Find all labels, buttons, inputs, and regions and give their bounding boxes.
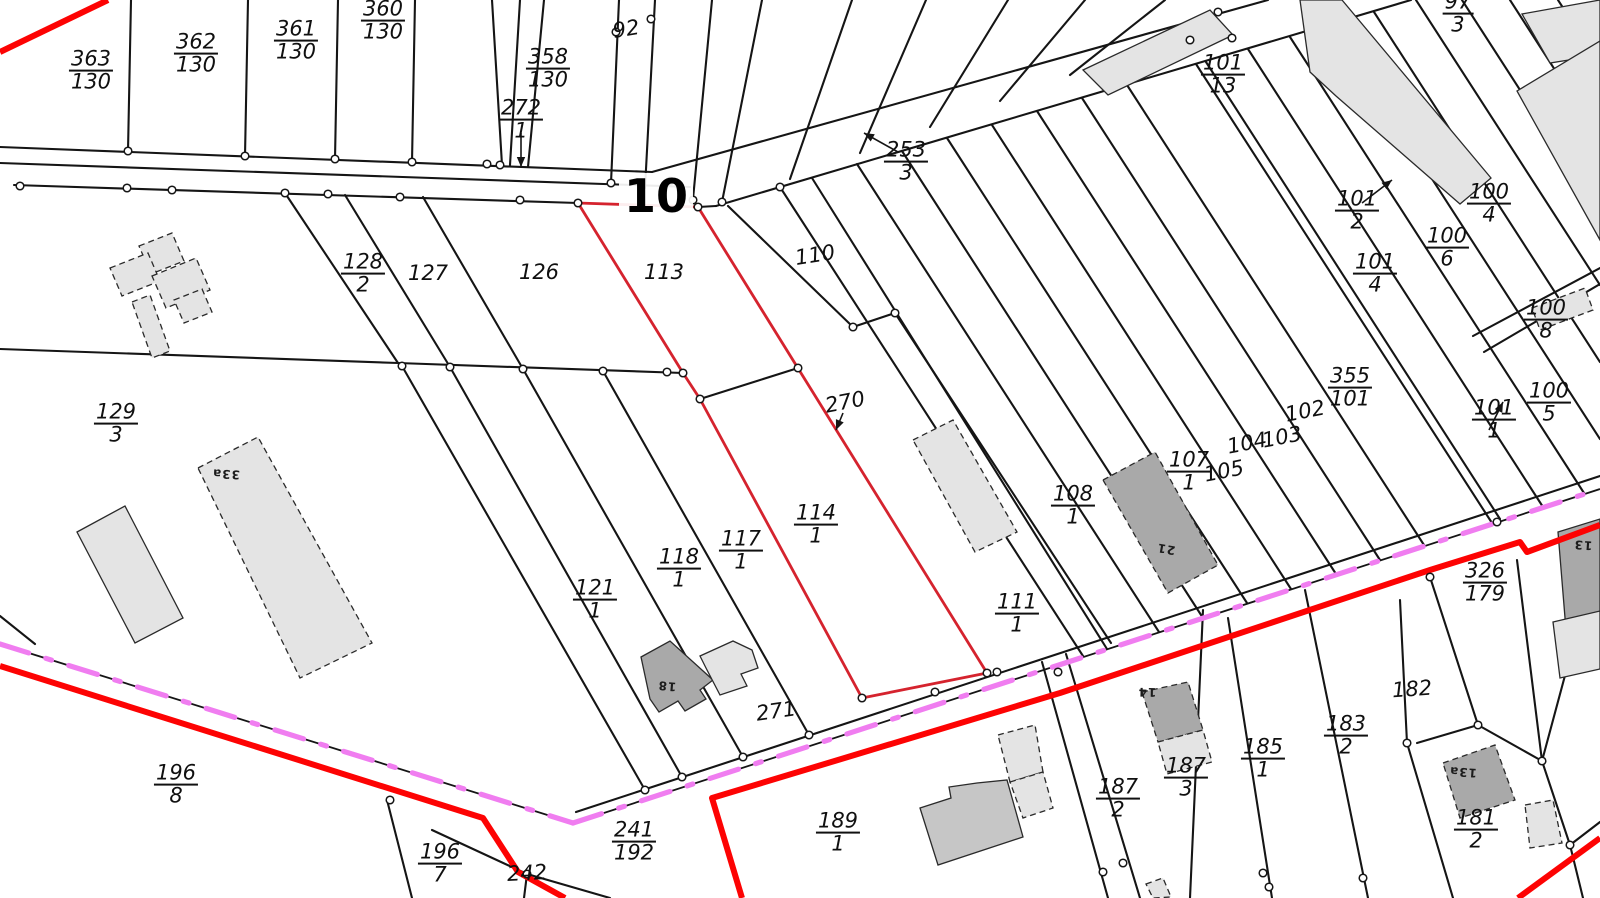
parcel-boundary-line bbox=[728, 206, 853, 327]
street-number-label: 10 bbox=[619, 173, 693, 219]
cadastral-map-canvas[interactable]: 3631303621303611303601303581302721128212… bbox=[0, 0, 1600, 898]
survey-node bbox=[891, 309, 899, 317]
building-footprint bbox=[913, 420, 1017, 552]
survey-node bbox=[396, 193, 404, 201]
parcel-boundary-line bbox=[1066, 654, 1140, 898]
parcel-boundary-line bbox=[860, 0, 926, 153]
parcel-boundary-line bbox=[450, 367, 682, 777]
survey-node bbox=[931, 688, 939, 696]
red-boundary-line bbox=[0, 666, 565, 898]
survey-node bbox=[123, 184, 131, 192]
label-pointer-arrow bbox=[1362, 180, 1392, 203]
label-pointer-arrow bbox=[1489, 402, 1503, 430]
parcel-boundary-line bbox=[853, 313, 895, 327]
parcel-boundary-line bbox=[722, 0, 762, 202]
survey-node bbox=[679, 369, 687, 377]
parcel-boundary-line bbox=[14, 185, 578, 203]
survey-node bbox=[1054, 668, 1062, 676]
survey-node bbox=[1426, 573, 1434, 581]
survey-node bbox=[1186, 36, 1194, 44]
survey-node bbox=[1259, 869, 1267, 877]
parcel-boundary-line bbox=[0, 616, 35, 644]
parcel-boundary-line bbox=[492, 0, 502, 165]
parcel-boundary-line bbox=[1400, 600, 1453, 898]
survey-node bbox=[1493, 518, 1501, 526]
parcel-boundary-line bbox=[0, 147, 652, 172]
survey-node bbox=[858, 694, 866, 702]
survey-node bbox=[993, 668, 1001, 676]
survey-node bbox=[607, 179, 615, 187]
building-footprint bbox=[1443, 745, 1515, 818]
parcel-boundary-line bbox=[1206, 62, 1500, 519]
parcel-boundary-line bbox=[1000, 0, 1085, 101]
survey-node bbox=[574, 199, 582, 207]
parcel-boundary-line bbox=[1417, 725, 1478, 743]
parcel-boundary-line bbox=[1037, 111, 1336, 574]
building-footprint bbox=[920, 780, 1023, 865]
label-pointer-arrow bbox=[836, 413, 844, 430]
parcel-boundary-line bbox=[930, 0, 1008, 127]
survey-node bbox=[1566, 841, 1574, 849]
survey-node bbox=[776, 183, 784, 191]
parcel-boundary-line bbox=[790, 0, 852, 179]
parcel-boundary-line bbox=[412, 0, 415, 162]
parcel-boundary-line bbox=[1430, 577, 1478, 725]
parcel-boundary-line bbox=[528, 0, 544, 167]
survey-node bbox=[446, 363, 454, 371]
parcel-boundary-line bbox=[128, 0, 131, 151]
parcel-boundary-line bbox=[812, 178, 1107, 649]
survey-node bbox=[1474, 721, 1482, 729]
building-footprint bbox=[77, 506, 183, 643]
survey-node bbox=[663, 368, 671, 376]
parcel-boundary-line bbox=[0, 349, 398, 363]
survey-node bbox=[408, 158, 416, 166]
label-pointer-arrow bbox=[864, 133, 898, 152]
parcel-boundary-line bbox=[700, 368, 798, 399]
survey-node bbox=[16, 182, 24, 190]
admin-boundary-pink-dash bbox=[0, 644, 573, 823]
survey-node bbox=[168, 186, 176, 194]
building-footprint bbox=[1532, 288, 1593, 330]
parcel-boundary-line bbox=[0, 163, 690, 187]
survey-node bbox=[612, 28, 620, 36]
survey-node bbox=[483, 160, 491, 168]
parcel-boundary-line bbox=[285, 193, 398, 363]
parcel-boundary-line bbox=[402, 366, 645, 790]
parcel-boundary-line bbox=[510, 0, 520, 165]
survey-node bbox=[516, 196, 524, 204]
parcel-boundary-line bbox=[523, 369, 743, 757]
survey-node bbox=[599, 367, 607, 375]
parcel-boundary-line bbox=[335, 0, 338, 159]
parcel-boundary-line bbox=[693, 0, 712, 199]
survey-node bbox=[241, 152, 249, 160]
parcel-boundary-line bbox=[423, 197, 523, 369]
survey-node bbox=[1228, 34, 1236, 42]
survey-node bbox=[523, 870, 531, 878]
map-drawing bbox=[0, 0, 1600, 898]
survey-node bbox=[794, 364, 802, 372]
survey-node bbox=[739, 753, 747, 761]
survey-node bbox=[718, 198, 726, 206]
survey-node bbox=[1099, 868, 1107, 876]
survey-node bbox=[678, 773, 686, 781]
building-footprint bbox=[1146, 878, 1171, 898]
parcel-boundary-line bbox=[1517, 560, 1542, 761]
survey-node bbox=[694, 203, 702, 211]
parcel-boundary-line bbox=[645, 0, 655, 188]
parcel-boundary-line bbox=[1305, 590, 1368, 898]
survey-node bbox=[398, 362, 406, 370]
building-footprint bbox=[1083, 10, 1233, 95]
survey-node bbox=[1359, 874, 1367, 882]
parcel-boundary-line bbox=[1127, 85, 1424, 545]
survey-node bbox=[1119, 859, 1127, 867]
survey-node bbox=[386, 796, 394, 804]
building-footprint bbox=[700, 641, 758, 695]
survey-node bbox=[496, 161, 504, 169]
survey-node bbox=[519, 365, 527, 373]
building-footprint bbox=[641, 641, 713, 712]
survey-node bbox=[324, 190, 332, 198]
survey-node bbox=[1403, 739, 1411, 747]
parcel-boundary-line bbox=[245, 0, 248, 156]
survey-node bbox=[1538, 757, 1546, 765]
parcel-boundary-line bbox=[345, 195, 450, 367]
survey-node bbox=[124, 147, 132, 155]
survey-node bbox=[805, 731, 813, 739]
building-footprint bbox=[1517, 41, 1600, 240]
building-footprint bbox=[998, 725, 1043, 782]
survey-node bbox=[641, 786, 649, 794]
building-footprint bbox=[198, 437, 372, 678]
survey-node bbox=[849, 323, 857, 331]
survey-node bbox=[647, 15, 655, 23]
survey-node bbox=[696, 395, 704, 403]
survey-node bbox=[983, 669, 991, 677]
parcel-boundary-line bbox=[387, 800, 412, 898]
red-boundary-line bbox=[0, 0, 108, 52]
survey-node bbox=[1214, 8, 1222, 16]
label-pointer-arrow bbox=[517, 133, 525, 167]
survey-node bbox=[331, 155, 339, 163]
survey-node bbox=[1265, 883, 1273, 891]
parcel-boundary-line bbox=[1228, 618, 1272, 898]
parcel-boundary-line bbox=[398, 363, 683, 373]
building-footprint bbox=[1553, 611, 1600, 678]
survey-node bbox=[281, 189, 289, 197]
parcel-boundary-line bbox=[611, 0, 619, 183]
